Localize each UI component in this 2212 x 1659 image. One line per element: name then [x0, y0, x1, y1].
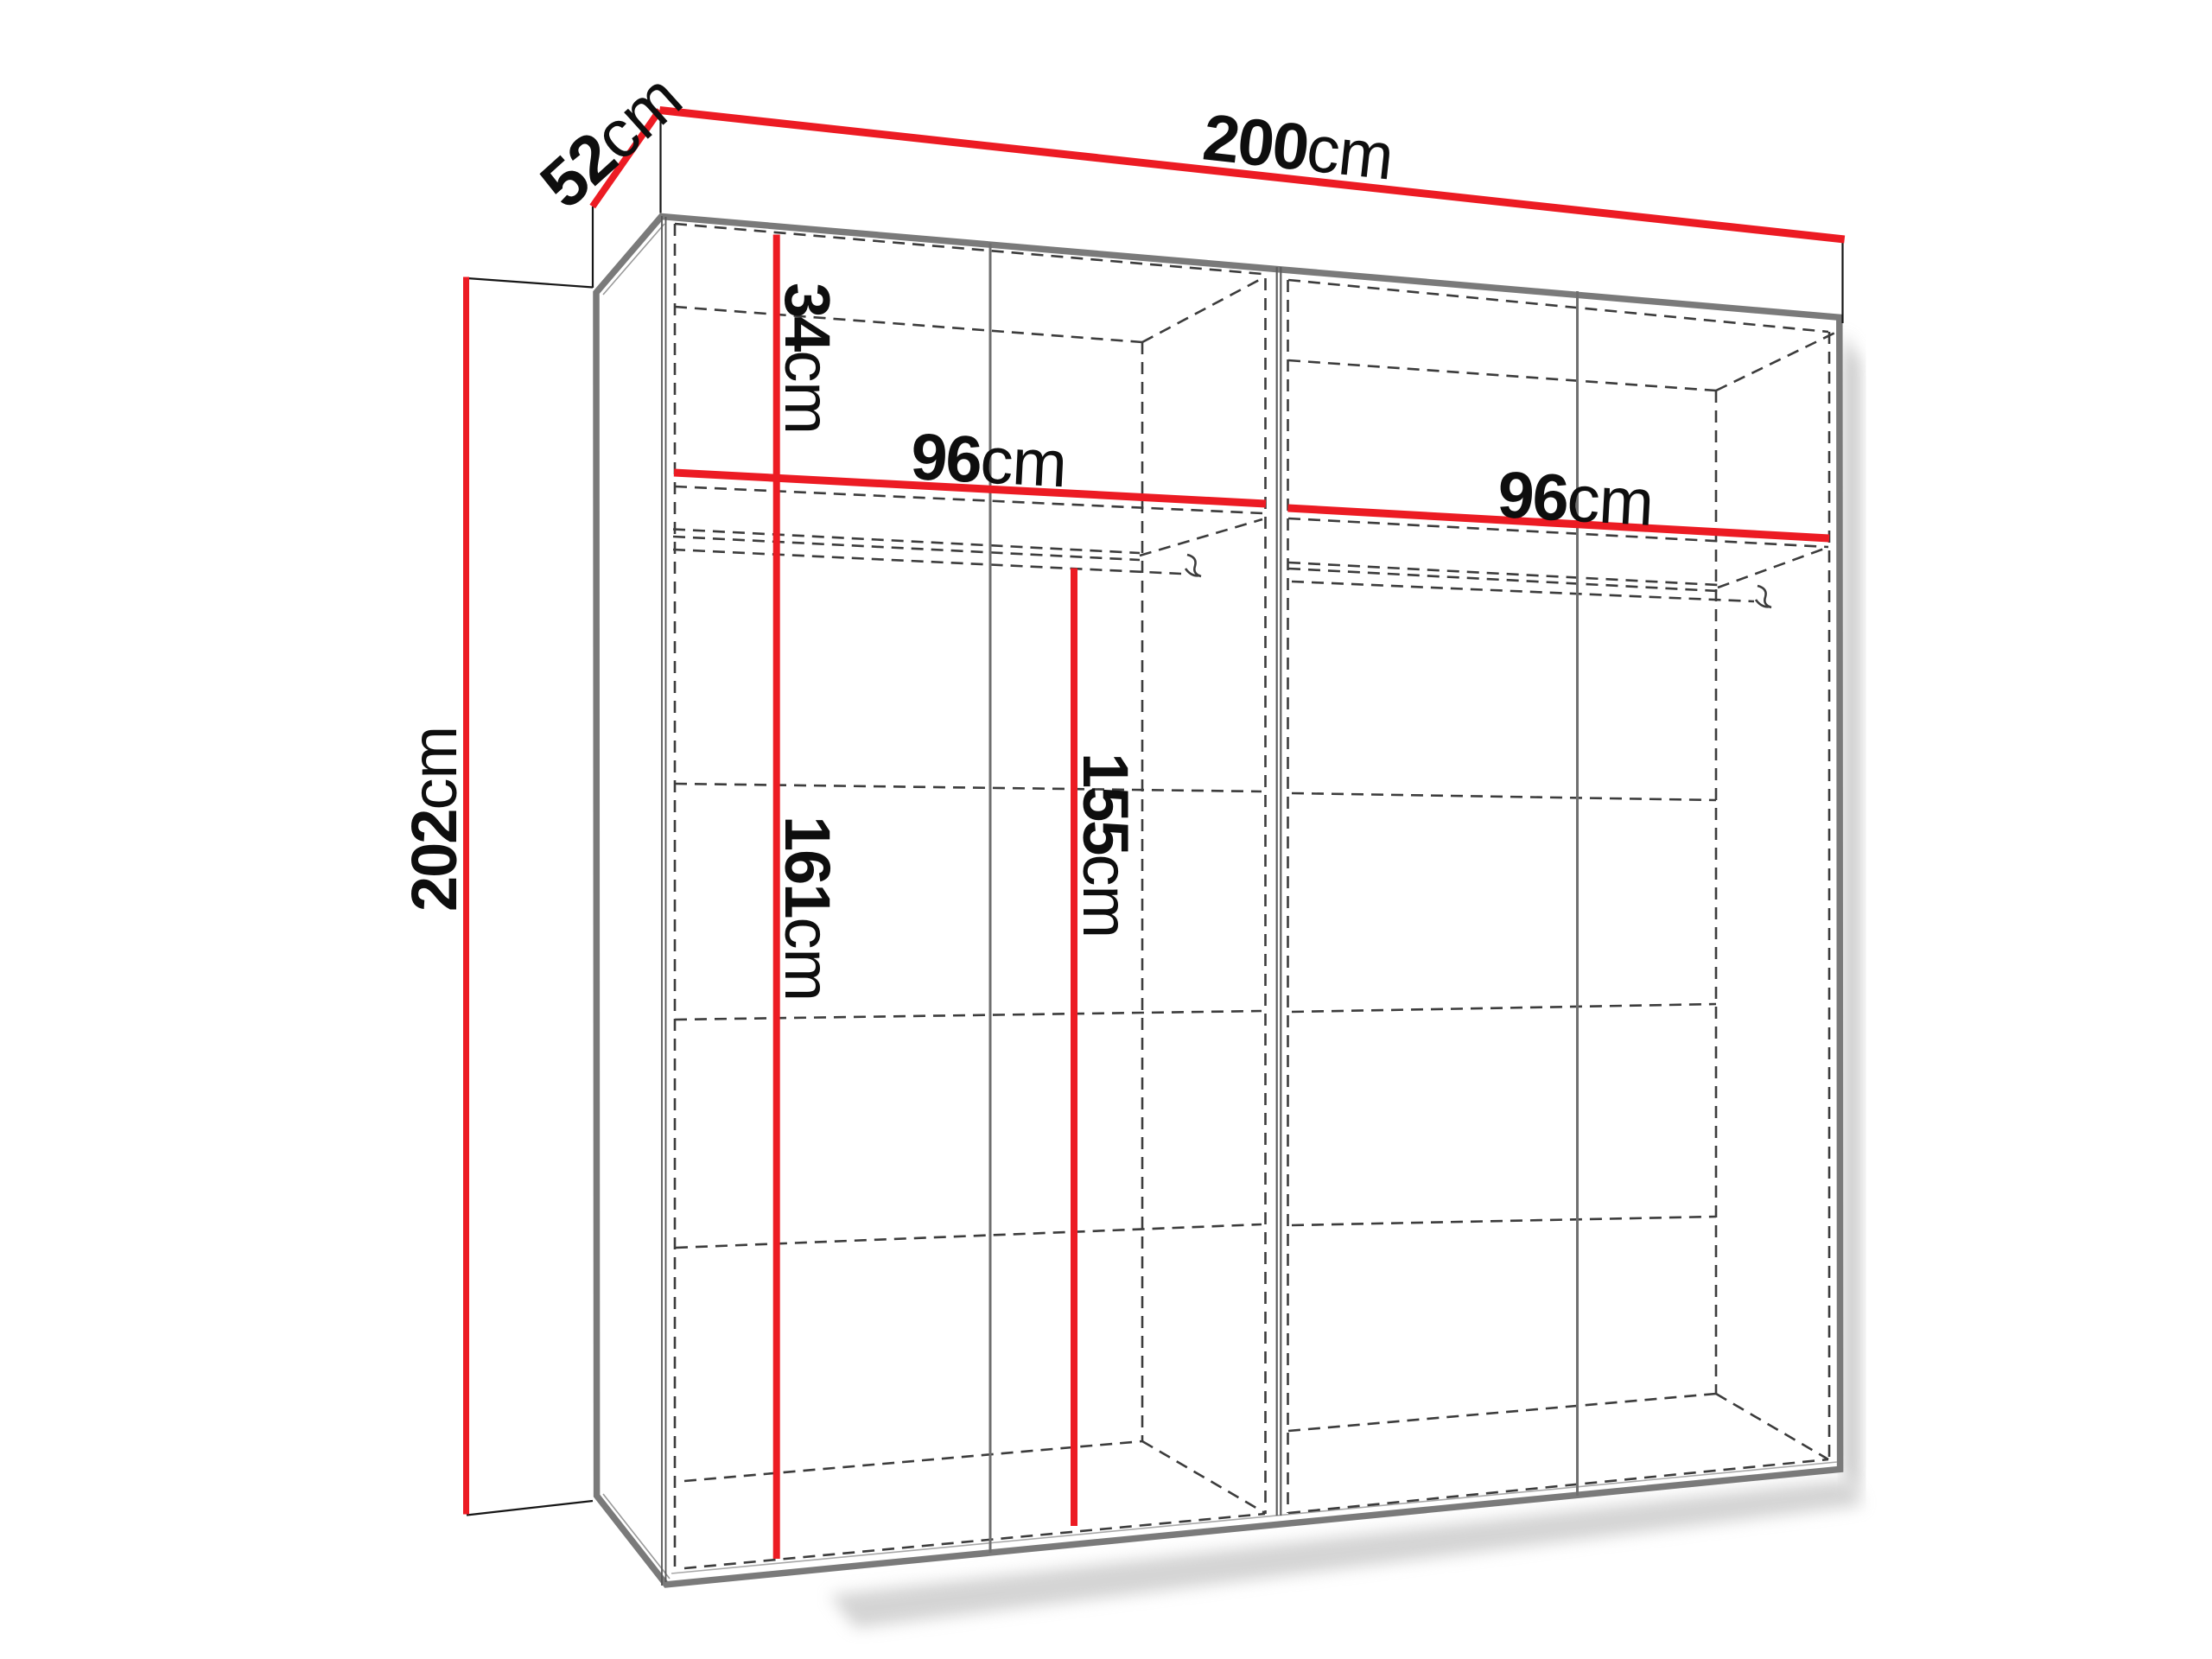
svg-text:96cm: 96cm: [909, 420, 1068, 501]
svg-text:161cm: 161cm: [772, 816, 843, 1001]
svg-text:202cm: 202cm: [398, 727, 470, 912]
svg-text:96cm: 96cm: [1496, 458, 1655, 540]
svg-text:34cm: 34cm: [772, 283, 843, 434]
svg-text:155cm: 155cm: [1070, 753, 1141, 938]
